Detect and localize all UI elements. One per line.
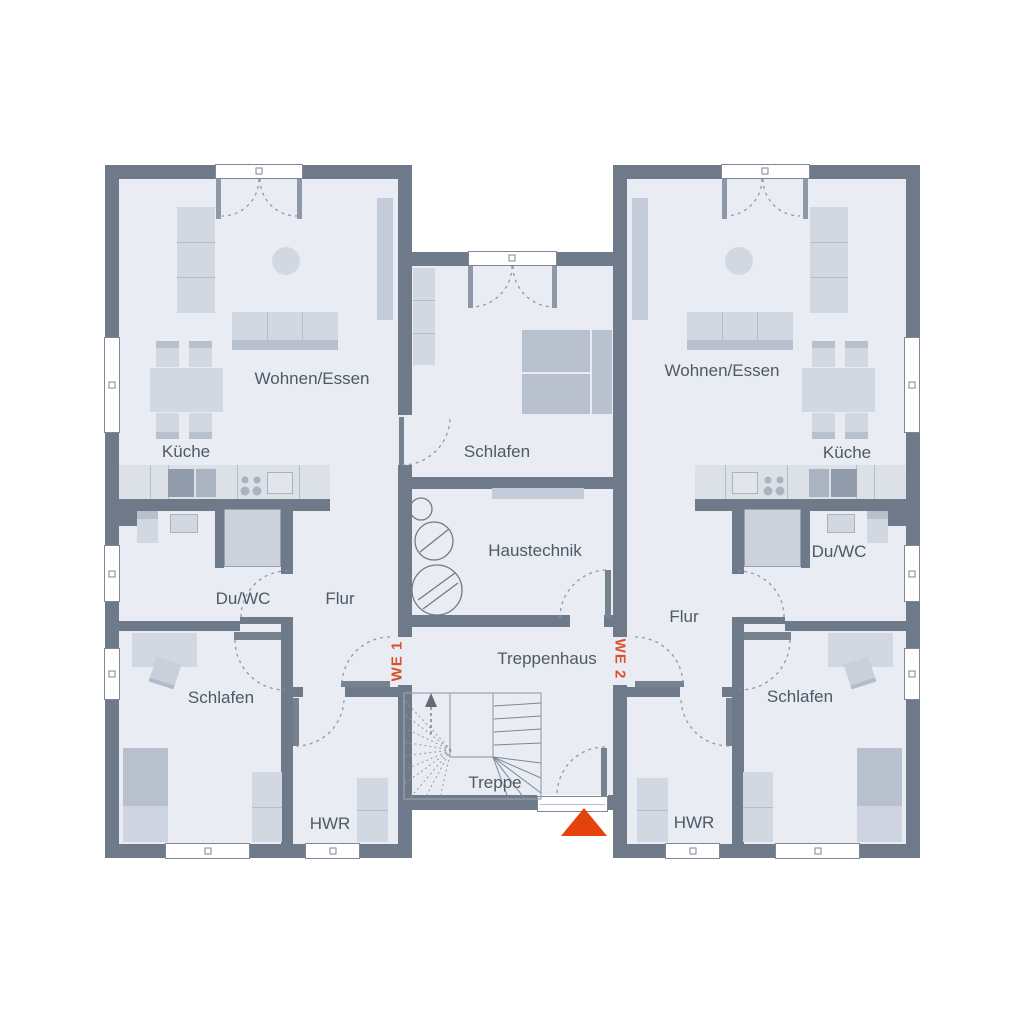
- toilet-tank: [867, 511, 888, 519]
- window-sash: [689, 848, 696, 855]
- chair: [812, 413, 835, 439]
- wall-segment: [906, 700, 920, 858]
- wardrobe: [743, 772, 773, 842]
- window: [104, 545, 120, 602]
- kitchen-counter-we2: [695, 465, 906, 499]
- window-sash: [909, 382, 916, 389]
- counter-divider: [237, 465, 238, 499]
- french-door-knob: [509, 255, 516, 262]
- room-label-kueche-we2: Küche: [823, 443, 871, 463]
- round-table: [272, 247, 300, 275]
- sofa-cushion-line: [302, 312, 303, 340]
- washer-dryer: [357, 778, 388, 842]
- room-label-duwc-we1: Du/WC: [216, 589, 271, 609]
- washer-dryer: [637, 778, 668, 842]
- unit-tag-we1: WE 1: [389, 641, 406, 682]
- window: [165, 843, 250, 859]
- chair-back: [812, 341, 835, 348]
- cabinet: [196, 469, 216, 497]
- sofa-cushion-line: [267, 312, 268, 340]
- appliance-divider: [357, 810, 388, 811]
- chair: [812, 341, 835, 367]
- wall-segment: [613, 165, 627, 637]
- sink: [267, 472, 293, 494]
- entrance-threshold: [537, 796, 608, 812]
- french-door-panel: [297, 179, 302, 219]
- wall-segment: [906, 602, 920, 648]
- window-sash: [109, 671, 116, 678]
- shower: [224, 509, 281, 567]
- shelf-divider: [810, 242, 848, 243]
- sofa-back: [687, 340, 793, 350]
- wall-segment: [345, 687, 412, 697]
- chair-back: [156, 341, 179, 348]
- counter-divider: [874, 465, 875, 499]
- wall-segment: [888, 511, 906, 526]
- sink: [732, 472, 758, 494]
- bed-divider: [590, 330, 592, 414]
- wall-haustechnik-south: [412, 615, 570, 627]
- wall-segment: [906, 433, 920, 545]
- wall-segment: [105, 165, 119, 337]
- wall-segment: [105, 700, 119, 858]
- door-leaf-hwr-we2: [726, 698, 732, 746]
- wall-segment: [303, 165, 412, 179]
- wall-segment: [398, 685, 412, 858]
- wall-segment: [215, 511, 224, 568]
- wall-segment: [281, 617, 293, 844]
- toilet-tank: [137, 511, 158, 519]
- shower: [744, 509, 801, 567]
- shelf-divider: [177, 242, 215, 243]
- sofa-cushion-line: [722, 312, 723, 340]
- round-table: [725, 247, 753, 275]
- window-sash: [329, 848, 336, 855]
- room-label-flur-we2: Flur: [669, 607, 698, 627]
- wardrobe-divider: [413, 300, 435, 301]
- chair: [189, 413, 212, 439]
- counter-divider: [150, 465, 151, 499]
- shelf-unit: [810, 207, 848, 313]
- entrance-triangle-icon: [561, 808, 607, 836]
- window-sash: [109, 570, 116, 577]
- cabinet: [809, 469, 829, 497]
- wall-segment: [785, 621, 906, 631]
- bed: [123, 748, 168, 842]
- room-label-duwc-we2: Du/WC: [812, 542, 867, 562]
- bed: [857, 748, 902, 842]
- window: [904, 648, 920, 700]
- wall-segment: [398, 465, 412, 637]
- wardrobe-divider: [252, 807, 282, 808]
- wall-segment: [608, 795, 627, 810]
- wall-segment: [613, 165, 722, 179]
- french-door-panel: [468, 266, 473, 308]
- toilet: [867, 511, 888, 543]
- sideboard: [377, 198, 393, 320]
- bed-mattress: [123, 748, 168, 806]
- wall-segment: [105, 844, 165, 858]
- counter-divider: [725, 465, 726, 499]
- window: [775, 843, 860, 859]
- counter-divider: [299, 465, 300, 499]
- dining-table: [802, 368, 875, 412]
- bed-mattress: [857, 748, 902, 806]
- window-sash: [909, 671, 916, 678]
- room-label-flur-we1: Flur: [325, 589, 354, 609]
- wall-segment: [293, 687, 303, 697]
- wall-segment: [613, 687, 680, 697]
- chair: [189, 341, 212, 367]
- wall-segment: [398, 795, 537, 810]
- room-label-hwr-we2: HWR: [674, 813, 715, 833]
- chair: [845, 413, 868, 439]
- window: [904, 545, 920, 602]
- kitchen-counter-we1: [119, 465, 330, 499]
- french-door-knob: [256, 168, 263, 175]
- counter-divider: [787, 465, 788, 499]
- sofa-back: [232, 340, 338, 350]
- window-sash: [109, 382, 116, 389]
- door-leaf-hwr-we1: [293, 698, 299, 746]
- wall-segment: [722, 687, 732, 697]
- wall-segment: [906, 165, 920, 337]
- sofa: [687, 312, 793, 350]
- haustechnik-shelf: [492, 488, 584, 499]
- window: [665, 843, 720, 859]
- chair: [156, 413, 179, 439]
- chair-back: [189, 432, 212, 439]
- window: [904, 337, 920, 433]
- room-label-treppenhaus: Treppenhaus: [497, 649, 597, 669]
- threshold-line: [540, 804, 605, 805]
- window-sash: [909, 570, 916, 577]
- window-sash: [814, 848, 821, 855]
- wall-segment: [732, 499, 744, 574]
- oven: [831, 469, 857, 497]
- chair-back: [845, 341, 868, 348]
- shelf-divider: [810, 277, 848, 278]
- shelf-unit: [177, 207, 215, 313]
- room-label-schlafen-we2: Schlafen: [767, 687, 833, 707]
- room-label-schlafen-we1: Schlafen: [188, 688, 254, 708]
- wall-segment: [281, 499, 293, 574]
- chair-back: [189, 341, 212, 348]
- room-label-haustechnik: Haustechnik: [488, 541, 582, 561]
- wall-segment: [119, 621, 240, 631]
- wall-segment: [613, 685, 627, 858]
- wardrobe: [413, 268, 435, 365]
- appliance-divider: [637, 810, 668, 811]
- bed-divider: [522, 372, 590, 374]
- wardrobe-divider: [413, 333, 435, 334]
- sofa: [232, 312, 338, 350]
- room-label-wohnen-we2: Wohnen/Essen: [665, 361, 780, 381]
- sideboard: [632, 198, 648, 320]
- wall-segment: [250, 844, 305, 858]
- window: [104, 337, 120, 433]
- chair-back: [845, 432, 868, 439]
- bath-sink: [170, 514, 198, 533]
- french-door-panel: [552, 266, 557, 308]
- french-door-panel: [722, 179, 727, 219]
- sofa-cushion-line: [757, 312, 758, 340]
- chair: [156, 341, 179, 367]
- room-label-schlafen-mid: Schlafen: [464, 442, 530, 462]
- door-leaf-midroom: [399, 417, 404, 465]
- chair-back: [812, 432, 835, 439]
- dining-table: [150, 368, 223, 412]
- door-leaf-haustechnik: [605, 570, 611, 618]
- wall-segment: [398, 165, 412, 415]
- wall-segment: [860, 844, 920, 858]
- unit-tag-we2: WE 2: [612, 639, 629, 680]
- wall-segment: [613, 844, 665, 858]
- room-label-treppe: Treppe: [468, 773, 521, 793]
- door-leaf-we1-entry: [341, 681, 390, 687]
- door-leaf-we2-entry: [635, 681, 684, 687]
- toilet: [137, 511, 158, 543]
- wall-segment: [801, 511, 810, 568]
- bath-sink: [827, 514, 855, 533]
- wall-segment: [398, 252, 468, 266]
- wall-segment: [119, 511, 137, 526]
- wall-segment: [105, 165, 215, 179]
- wardrobe-divider: [743, 807, 773, 808]
- french-door-panel: [803, 179, 808, 219]
- room-label-kueche-we1: Küche: [162, 442, 210, 462]
- wall-segment: [557, 252, 627, 266]
- window-sash: [204, 848, 211, 855]
- floor-plan: Wohnen/Essen Küche Du/WC Flur Schlafen H…: [0, 0, 1024, 1024]
- wall-segment: [720, 844, 775, 858]
- double-bed: [522, 330, 612, 414]
- wall-segment: [105, 433, 119, 545]
- oven: [168, 469, 194, 497]
- room-label-hwr-we1: HWR: [310, 814, 351, 834]
- chair-back: [156, 432, 179, 439]
- door-leaf-house-entry: [601, 748, 607, 796]
- wall-segment: [810, 165, 920, 179]
- french-door-knob: [762, 168, 769, 175]
- chair: [845, 341, 868, 367]
- shelf-divider: [177, 277, 215, 278]
- wardrobe: [252, 772, 282, 842]
- wall-segment: [105, 602, 119, 648]
- window: [305, 843, 360, 859]
- french-door-panel: [216, 179, 221, 219]
- room-label-wohnen-we1: Wohnen/Essen: [255, 369, 370, 389]
- window: [104, 648, 120, 700]
